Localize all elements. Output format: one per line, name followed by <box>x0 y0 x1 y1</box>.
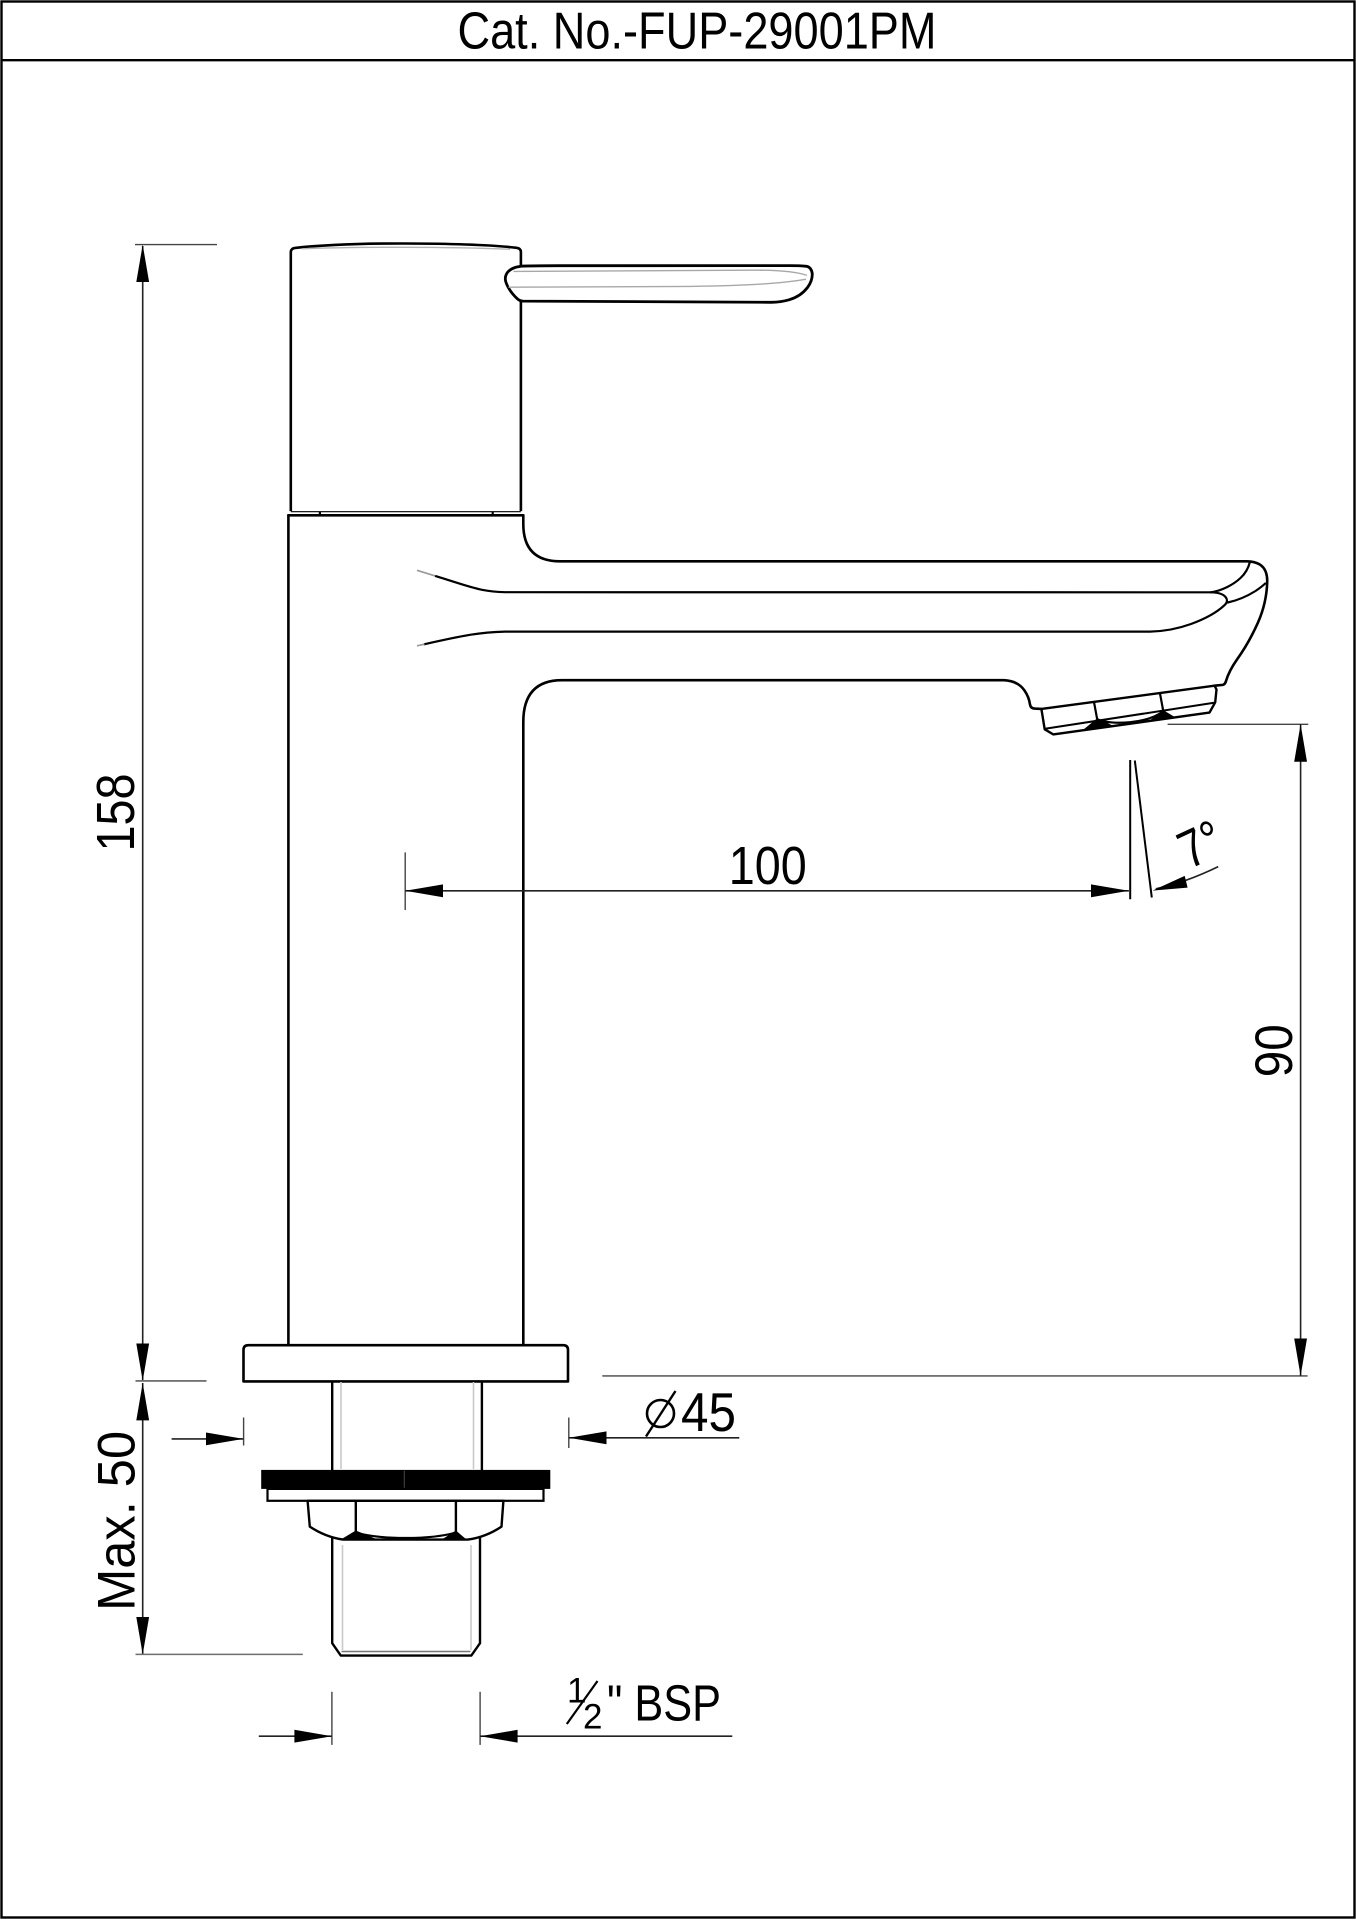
svg-text:2: 2 <box>583 1698 602 1737</box>
svg-text:Max. 50: Max. 50 <box>88 1431 147 1611</box>
svg-text:" BSP: " BSP <box>607 1675 721 1732</box>
svg-text:100: 100 <box>729 836 807 896</box>
svg-text:90: 90 <box>1245 1024 1304 1077</box>
svg-text:Cat. No.-FUP-29001PM: Cat. No.-FUP-29001PM <box>458 2 937 60</box>
svg-text:45: 45 <box>681 1381 736 1443</box>
svg-text:158: 158 <box>86 774 146 852</box>
